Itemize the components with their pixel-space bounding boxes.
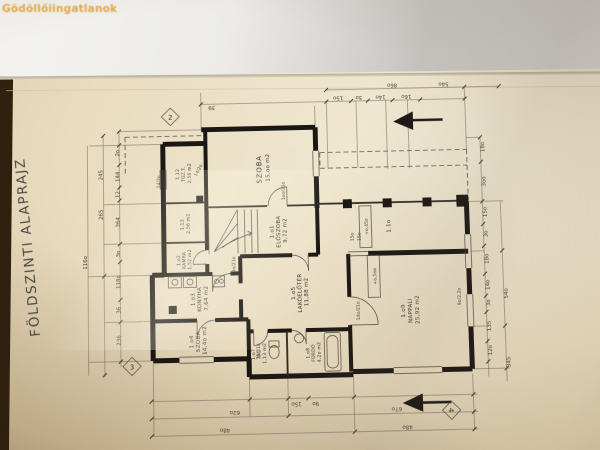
- dim-label: 36: [116, 306, 122, 314]
- entrance-arrow-top: [393, 111, 443, 131]
- opening-note: 14/2o: [156, 175, 162, 188]
- page-title: FÖLDSZINTI ALAPRAJZ: [10, 157, 44, 338]
- dim-label: 135: [487, 321, 494, 332]
- dim-label: 18o: [484, 253, 490, 264]
- dim-label: 116o: [83, 255, 89, 270]
- dim-label: 345: [506, 357, 513, 368]
- axis-label: 4: [446, 408, 454, 413]
- axis-marker-4: 4: [442, 401, 461, 420]
- opening-note: 15o: [350, 232, 356, 241]
- level-marker-main: +o,5oo: [367, 255, 380, 297]
- opening-note: 75/21o: [256, 343, 262, 360]
- axis-label: 3: [130, 363, 135, 371]
- staircase: [208, 209, 258, 254]
- axis-marker-3: 3: [123, 357, 141, 376]
- plan-tilt-wrapper: FÖLDSZINTI ALAPRAJZ: [0, 0, 600, 450]
- axis-label: 2: [168, 114, 173, 122]
- opening-note: 14o/21o: [355, 301, 362, 320]
- opening-note: 15o: [357, 232, 363, 241]
- dim-label: 54o: [504, 287, 511, 298]
- dim-label: 54o: [437, 80, 448, 86]
- dimension-labels-top: 39 15o 3o 14o 16o 86o 54o: [207, 80, 449, 110]
- opening-note: 9o/21o: [231, 256, 237, 272]
- room-label-nappali: 1.o9 NAPPALI 25,92 m2: [400, 295, 421, 324]
- dim-label: 245: [98, 170, 104, 180]
- dim-label: 48o: [219, 426, 230, 432]
- dim-label: 2o: [115, 149, 121, 157]
- dim-label: 48o: [402, 423, 413, 429]
- level-label: +o,5oo: [372, 268, 379, 285]
- dim-label: 3oo: [481, 176, 487, 187]
- dimension-labels-right: 18o 3oo 15o 3o 18o 14o 3o 135 12o 54o 34…: [480, 141, 513, 368]
- dim-label: 86o: [386, 82, 397, 88]
- floor-plan-svg: FÖLDSZINTI ALAPRAJZ: [0, 0, 600, 450]
- dim-label: 18o: [480, 141, 486, 152]
- room-label-szoba4: 1.o4 SZOBA 14,4o m2: [189, 326, 209, 355]
- room-label-konyha: 1.o3 KONYHA 7,64 m2: [190, 285, 210, 312]
- dim-label: 236: [117, 334, 123, 345]
- floor-plan-photo: FÖLDSZINTI ALAPRAJZ: [0, 0, 600, 450]
- watermark-text: Gödöllőiingatlanok: [2, 3, 117, 15]
- room-label-kamra: 1.o2 KAMRA 1,52 m2: [176, 249, 193, 270]
- dim-label: 265: [99, 209, 105, 220]
- room-label-terasz: 1.1o: [386, 219, 392, 233]
- room-label-eloszoba: 1.o1 ELŐSZOBA 9,72 m2: [269, 213, 289, 248]
- dim-label: 12o: [488, 344, 495, 355]
- dim-label: 118o: [116, 274, 122, 289]
- opening-note: 1oo/21o: [281, 181, 287, 200]
- dim-label: 15o: [290, 400, 301, 406]
- dim-label: 3o: [486, 299, 492, 307]
- toilet: [269, 341, 279, 359]
- dim-label: 3o: [355, 94, 363, 100]
- dim-label: 62o: [229, 409, 240, 415]
- room-label-lakoeloter: 1.o5 LAKÓELŐTÉR 11,88 m2: [290, 271, 310, 313]
- dim-label: 67o: [391, 405, 402, 411]
- room-label-szoba: SZOBA 15,oo m2: [255, 152, 272, 184]
- dim-label: 15o: [332, 94, 343, 100]
- dim-label: 12: [115, 191, 121, 198]
- opening-note: 14/2o: [193, 163, 204, 177]
- dim-label: 15o: [482, 206, 488, 217]
- room-labels: 1.12 TÜZ.T. 2,56 m2 1.13 2,56 m2 SZOBA 1…: [175, 149, 423, 366]
- dim-label: 14o: [375, 93, 386, 99]
- dim-label: 364: [116, 216, 122, 227]
- room-label-furdo: 1.o8 FÜRDŐ 4,2o m2: [305, 342, 323, 363]
- dim-label: 16o: [400, 93, 411, 99]
- door-swings: [192, 185, 379, 347]
- dimension-lines: [87, 84, 514, 440]
- axis-marker-2: 2: [161, 108, 179, 126]
- washbasin: [294, 334, 303, 343]
- dim-label: 3o: [483, 230, 489, 238]
- dim-label: 14o: [485, 279, 491, 290]
- dim-label: 39: [208, 104, 216, 110]
- dimension-labels-bottom: 62o 48o 15o 9o 67o 48o: [219, 398, 413, 434]
- opening-note: 9o/2,2o: [456, 287, 463, 305]
- dim-label: 3o: [116, 250, 122, 258]
- room-label-tuzt: 1.12 TÜZ.T. 2,56 m2: [175, 163, 193, 184]
- level-label: +o,45o: [364, 218, 371, 235]
- dim-label: 144: [115, 171, 121, 182]
- room-label-113: 1.13 2,56 m2: [179, 213, 191, 234]
- bathtub: [324, 332, 341, 371]
- dim-label: 9o: [311, 400, 319, 406]
